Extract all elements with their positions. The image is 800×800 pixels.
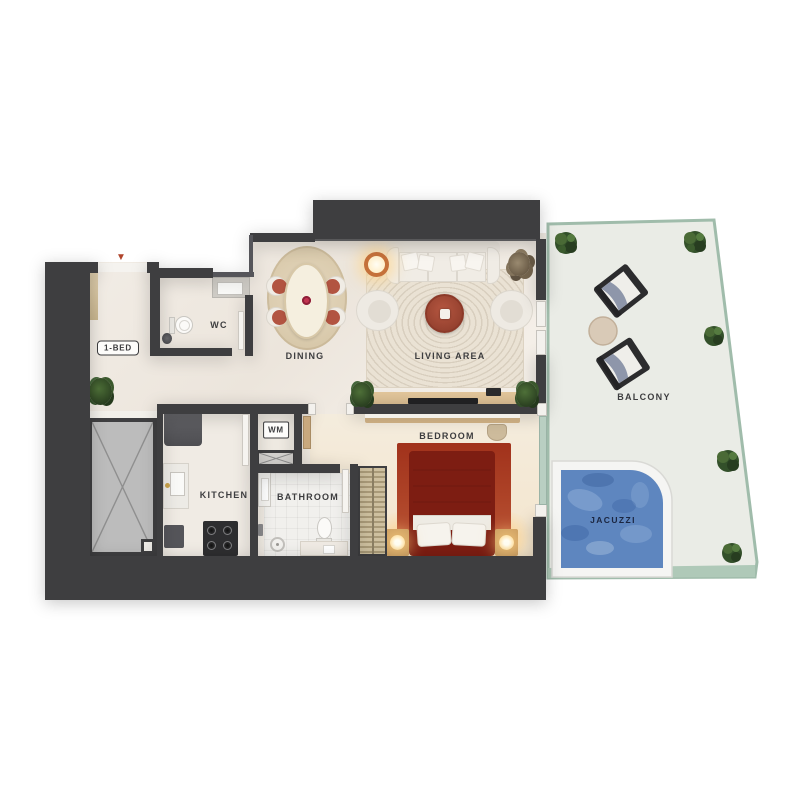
dining-label: DINING: [286, 351, 325, 361]
wc-label: WC: [210, 320, 227, 330]
unit-badge: 1-BED: [97, 341, 139, 356]
living-label: LIVING AREA: [415, 351, 486, 361]
kitchen-label: KITCHEN: [200, 490, 248, 500]
entry-marker-icon: ▼: [116, 253, 126, 263]
wm-label: WM: [263, 422, 289, 439]
floor-plan: JACUZZI: [0, 0, 800, 800]
bedroom-label: BEDROOM: [419, 431, 474, 441]
labels-layer: ▼ 1-BED WC DINING LIVING AREA BEDROOM KI…: [0, 0, 800, 800]
bathroom-label: BATHROOM: [277, 492, 339, 502]
